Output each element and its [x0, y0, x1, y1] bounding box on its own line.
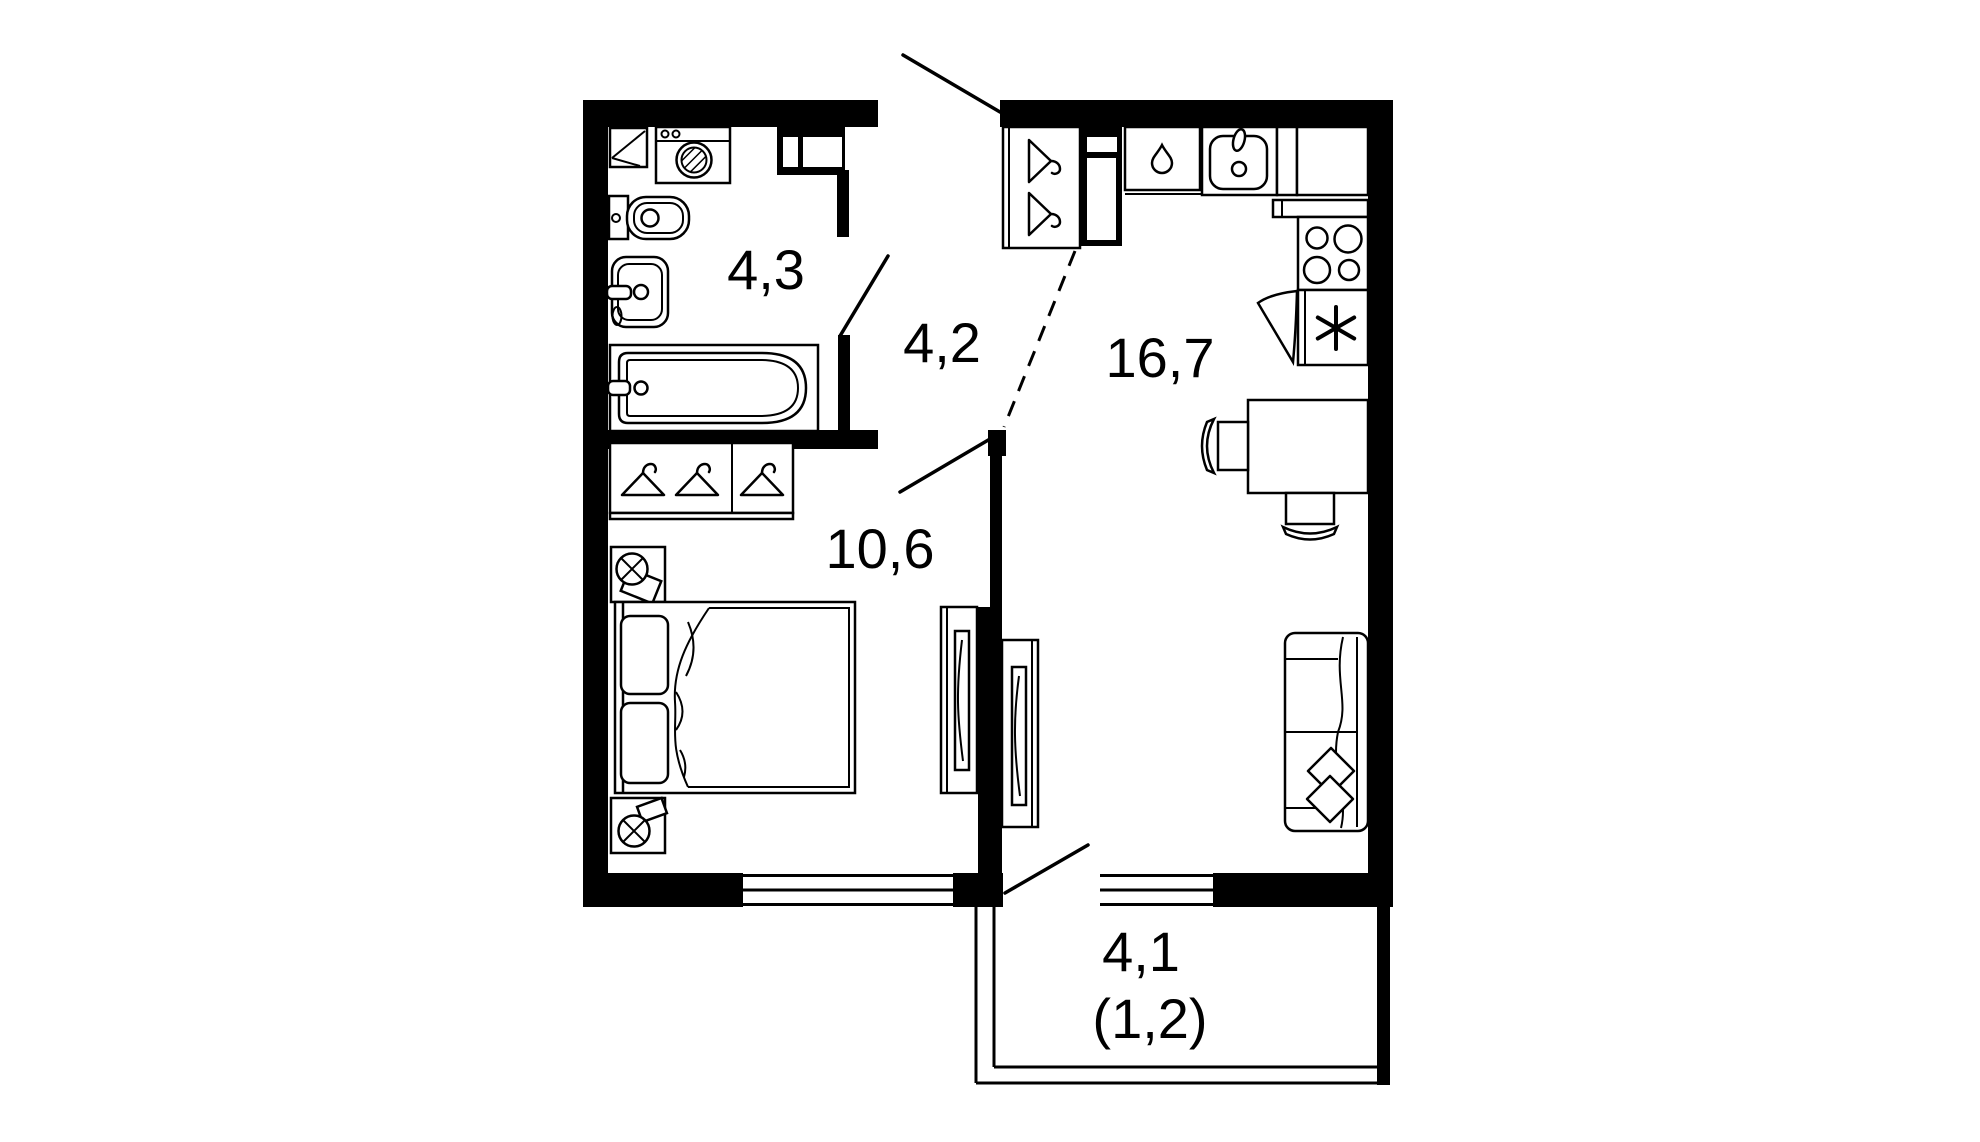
wall-bathroom-right-lower [838, 335, 850, 449]
counter-cabinet [1277, 127, 1297, 195]
wardrobe-icon [610, 443, 793, 519]
tv-unit-icon [941, 607, 977, 793]
vent-shaft-slot [1087, 137, 1117, 152]
chair-icon [1202, 419, 1248, 473]
wall-partition-upper [990, 430, 1002, 607]
stove-icon [1298, 217, 1368, 290]
washbasin-icon [607, 257, 668, 327]
wall-bottom-living [1213, 873, 1393, 907]
zone-boundary-dashed-line [1004, 251, 1075, 427]
window-icon [743, 873, 953, 907]
vent-shaft-slot [803, 137, 842, 167]
sofa-icon [1285, 633, 1368, 831]
wall-top-bathroom [583, 100, 878, 127]
tv-unit-icon [1002, 640, 1038, 827]
shelf-icon [610, 128, 647, 167]
wall-bottom-middle [953, 873, 1003, 907]
counter-cabinet [1297, 127, 1368, 195]
bathtub-icon [608, 345, 818, 431]
vent-shaft-slot [783, 137, 798, 167]
bedroom-furniture [610, 443, 1038, 853]
fridge-icon [1258, 290, 1368, 365]
chair-icon [1283, 493, 1337, 540]
nightstand-lamp-icon [611, 547, 665, 603]
double-bed-icon [615, 602, 855, 793]
countertop [1125, 127, 1368, 217]
dishwasher-drop-icon [1125, 127, 1200, 190]
bedroom-area-label: 10,6 [826, 517, 935, 580]
wall-bathroom-right-upper [837, 170, 849, 237]
dining-table-icon [1248, 400, 1368, 493]
kitchen-furniture [1003, 127, 1368, 831]
bedroom-door-swing-icon [900, 439, 990, 492]
entry-closet-icon [1003, 127, 1080, 248]
balcony-area-secondary-label: (1,2) [1092, 987, 1207, 1050]
wall-right [1368, 100, 1393, 875]
wall-partition-lower [978, 607, 1002, 875]
wall-left [583, 100, 608, 907]
floor-plan-canvas: 4,3 4,2 10,6 16,7 4,1 (1,2) [0, 0, 1980, 1142]
kitchen-living-area-label: 16,7 [1106, 326, 1215, 389]
hallway-area-label: 4,2 [903, 311, 981, 374]
vent-shaft-slot [1087, 158, 1116, 240]
pillow-icon [621, 703, 668, 783]
washing-machine-icon [656, 127, 730, 183]
bathroom-area-label: 4,3 [727, 238, 805, 301]
kitchen-sink-icon [1202, 127, 1277, 195]
wall-bottom-bedroom [583, 873, 743, 907]
balcony-door-swing-icon [1005, 845, 1088, 893]
wall-top-kitchen [1000, 100, 1393, 127]
pillow-icon [621, 616, 668, 694]
toilet-icon [609, 196, 689, 239]
balcony-side-wall [1377, 907, 1390, 1085]
counter-return [1273, 200, 1368, 217]
bathroom-door-swing-icon [840, 256, 888, 336]
balcony-area-label: 4,1 [1102, 920, 1180, 983]
entrance-door-swing-icon [903, 55, 1000, 112]
nightstand-lamp-icon [611, 798, 667, 853]
window-icon [1100, 873, 1213, 907]
